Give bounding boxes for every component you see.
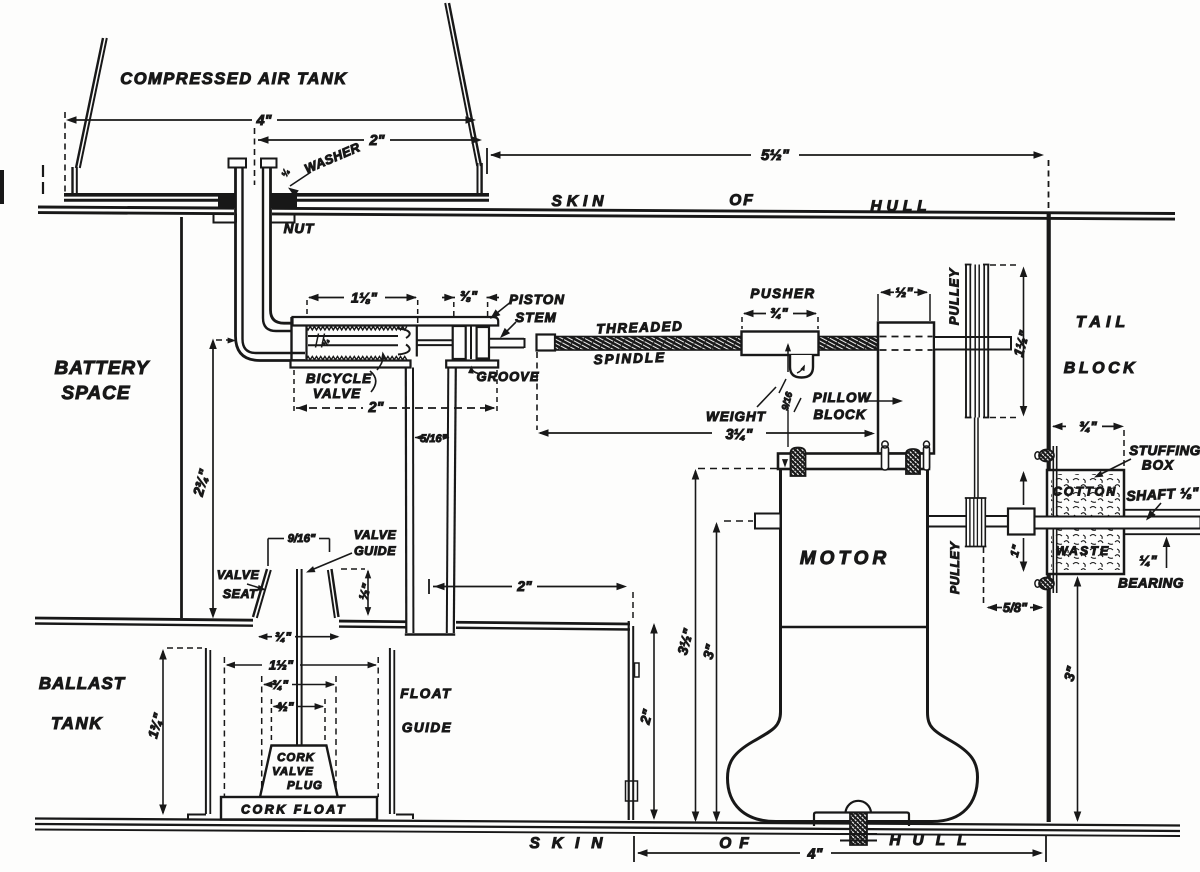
svg-text:PULLEY: PULLEY	[947, 268, 962, 326]
svg-text:5½": 5½"	[761, 147, 790, 164]
svg-text:SKIN: SKIN	[551, 193, 608, 210]
svg-text:CORK: CORK	[277, 752, 315, 764]
svg-text:2": 2"	[368, 400, 385, 416]
svg-text:1⅛": 1⅛"	[351, 290, 377, 306]
svg-text:STEM: STEM	[515, 310, 557, 325]
svg-text:CORK FLOAT: CORK FLOAT	[241, 803, 347, 817]
svg-text:SKIN: SKIN	[529, 835, 614, 852]
svg-text:VALVE: VALVE	[272, 766, 314, 778]
svg-text:BALLAST: BALLAST	[39, 674, 126, 693]
svg-text:¼": ¼"	[1139, 553, 1157, 568]
svg-text:5/8": 5/8"	[1003, 600, 1028, 615]
svg-text:BOX: BOX	[1142, 458, 1174, 473]
svg-text:BEARING: BEARING	[1118, 576, 1184, 591]
svg-text:TANK: TANK	[51, 714, 103, 733]
svg-text:BATTERY: BATTERY	[55, 358, 151, 379]
svg-text:HULL: HULL	[870, 198, 931, 215]
svg-text:SPACE: SPACE	[61, 383, 130, 404]
svg-text:PLUG: PLUG	[287, 780, 323, 792]
svg-text:4": 4"	[807, 847, 824, 863]
svg-text:¾": ¾"	[770, 306, 788, 321]
svg-text:4": 4"	[256, 113, 273, 129]
svg-text:¾": ¾"	[275, 630, 292, 644]
svg-text:OF: OF	[719, 835, 757, 852]
svg-text:SPINDLE: SPINDLE	[593, 350, 666, 368]
svg-text:GROOVE: GROOVE	[476, 369, 539, 384]
svg-text:BLOCK: BLOCK	[1064, 360, 1138, 377]
svg-text:PILLOW: PILLOW	[813, 390, 872, 405]
svg-text:9/16": 9/16"	[288, 533, 316, 545]
svg-text:BICYCLE: BICYCLE	[306, 371, 372, 386]
svg-text:SEAT: SEAT	[223, 587, 258, 601]
svg-text:GUIDE: GUIDE	[354, 544, 396, 558]
svg-text:OF: OF	[729, 192, 755, 209]
svg-text:COTTON: COTTON	[1053, 485, 1118, 499]
svg-text:FLOAT: FLOAT	[400, 686, 452, 701]
svg-text:PUSHER: PUSHER	[750, 286, 815, 301]
svg-text:PISTON: PISTON	[509, 292, 565, 307]
svg-text:GUIDE: GUIDE	[402, 720, 452, 735]
svg-text:THREADED: THREADED	[596, 318, 683, 336]
svg-text:NUT: NUT	[284, 221, 315, 236]
svg-text:VALVE: VALVE	[354, 528, 397, 542]
svg-text:2": 2"	[369, 133, 386, 149]
svg-text:VALVE: VALVE	[217, 568, 260, 582]
svg-text:BLOCK: BLOCK	[814, 407, 867, 422]
svg-text:COMPRESSED AIR TANK: COMPRESSED AIR TANK	[120, 70, 347, 88]
svg-text:¾": ¾"	[272, 678, 289, 692]
svg-text:TAIL: TAIL	[1076, 314, 1130, 331]
svg-text:WEIGHT: WEIGHT	[706, 409, 767, 424]
svg-text:¾": ¾"	[1079, 419, 1097, 434]
svg-text:VALVE: VALVE	[313, 386, 361, 401]
svg-text:STUFFING: STUFFING	[1129, 443, 1200, 458]
svg-text:1½": 1½"	[269, 658, 294, 673]
svg-text:PULLEY: PULLEY	[948, 541, 962, 594]
svg-text:WASTE: WASTE	[1056, 544, 1110, 558]
svg-text:½": ½"	[277, 700, 294, 714]
svg-text:½": ½"	[895, 285, 913, 300]
svg-text:3¼": 3¼"	[725, 427, 753, 443]
svg-text:2": 2"	[516, 578, 532, 594]
svg-text:HULL: HULL	[889, 832, 978, 849]
svg-text:⅜": ⅜"	[460, 289, 478, 304]
svg-text:MOTOR: MOTOR	[800, 548, 890, 569]
